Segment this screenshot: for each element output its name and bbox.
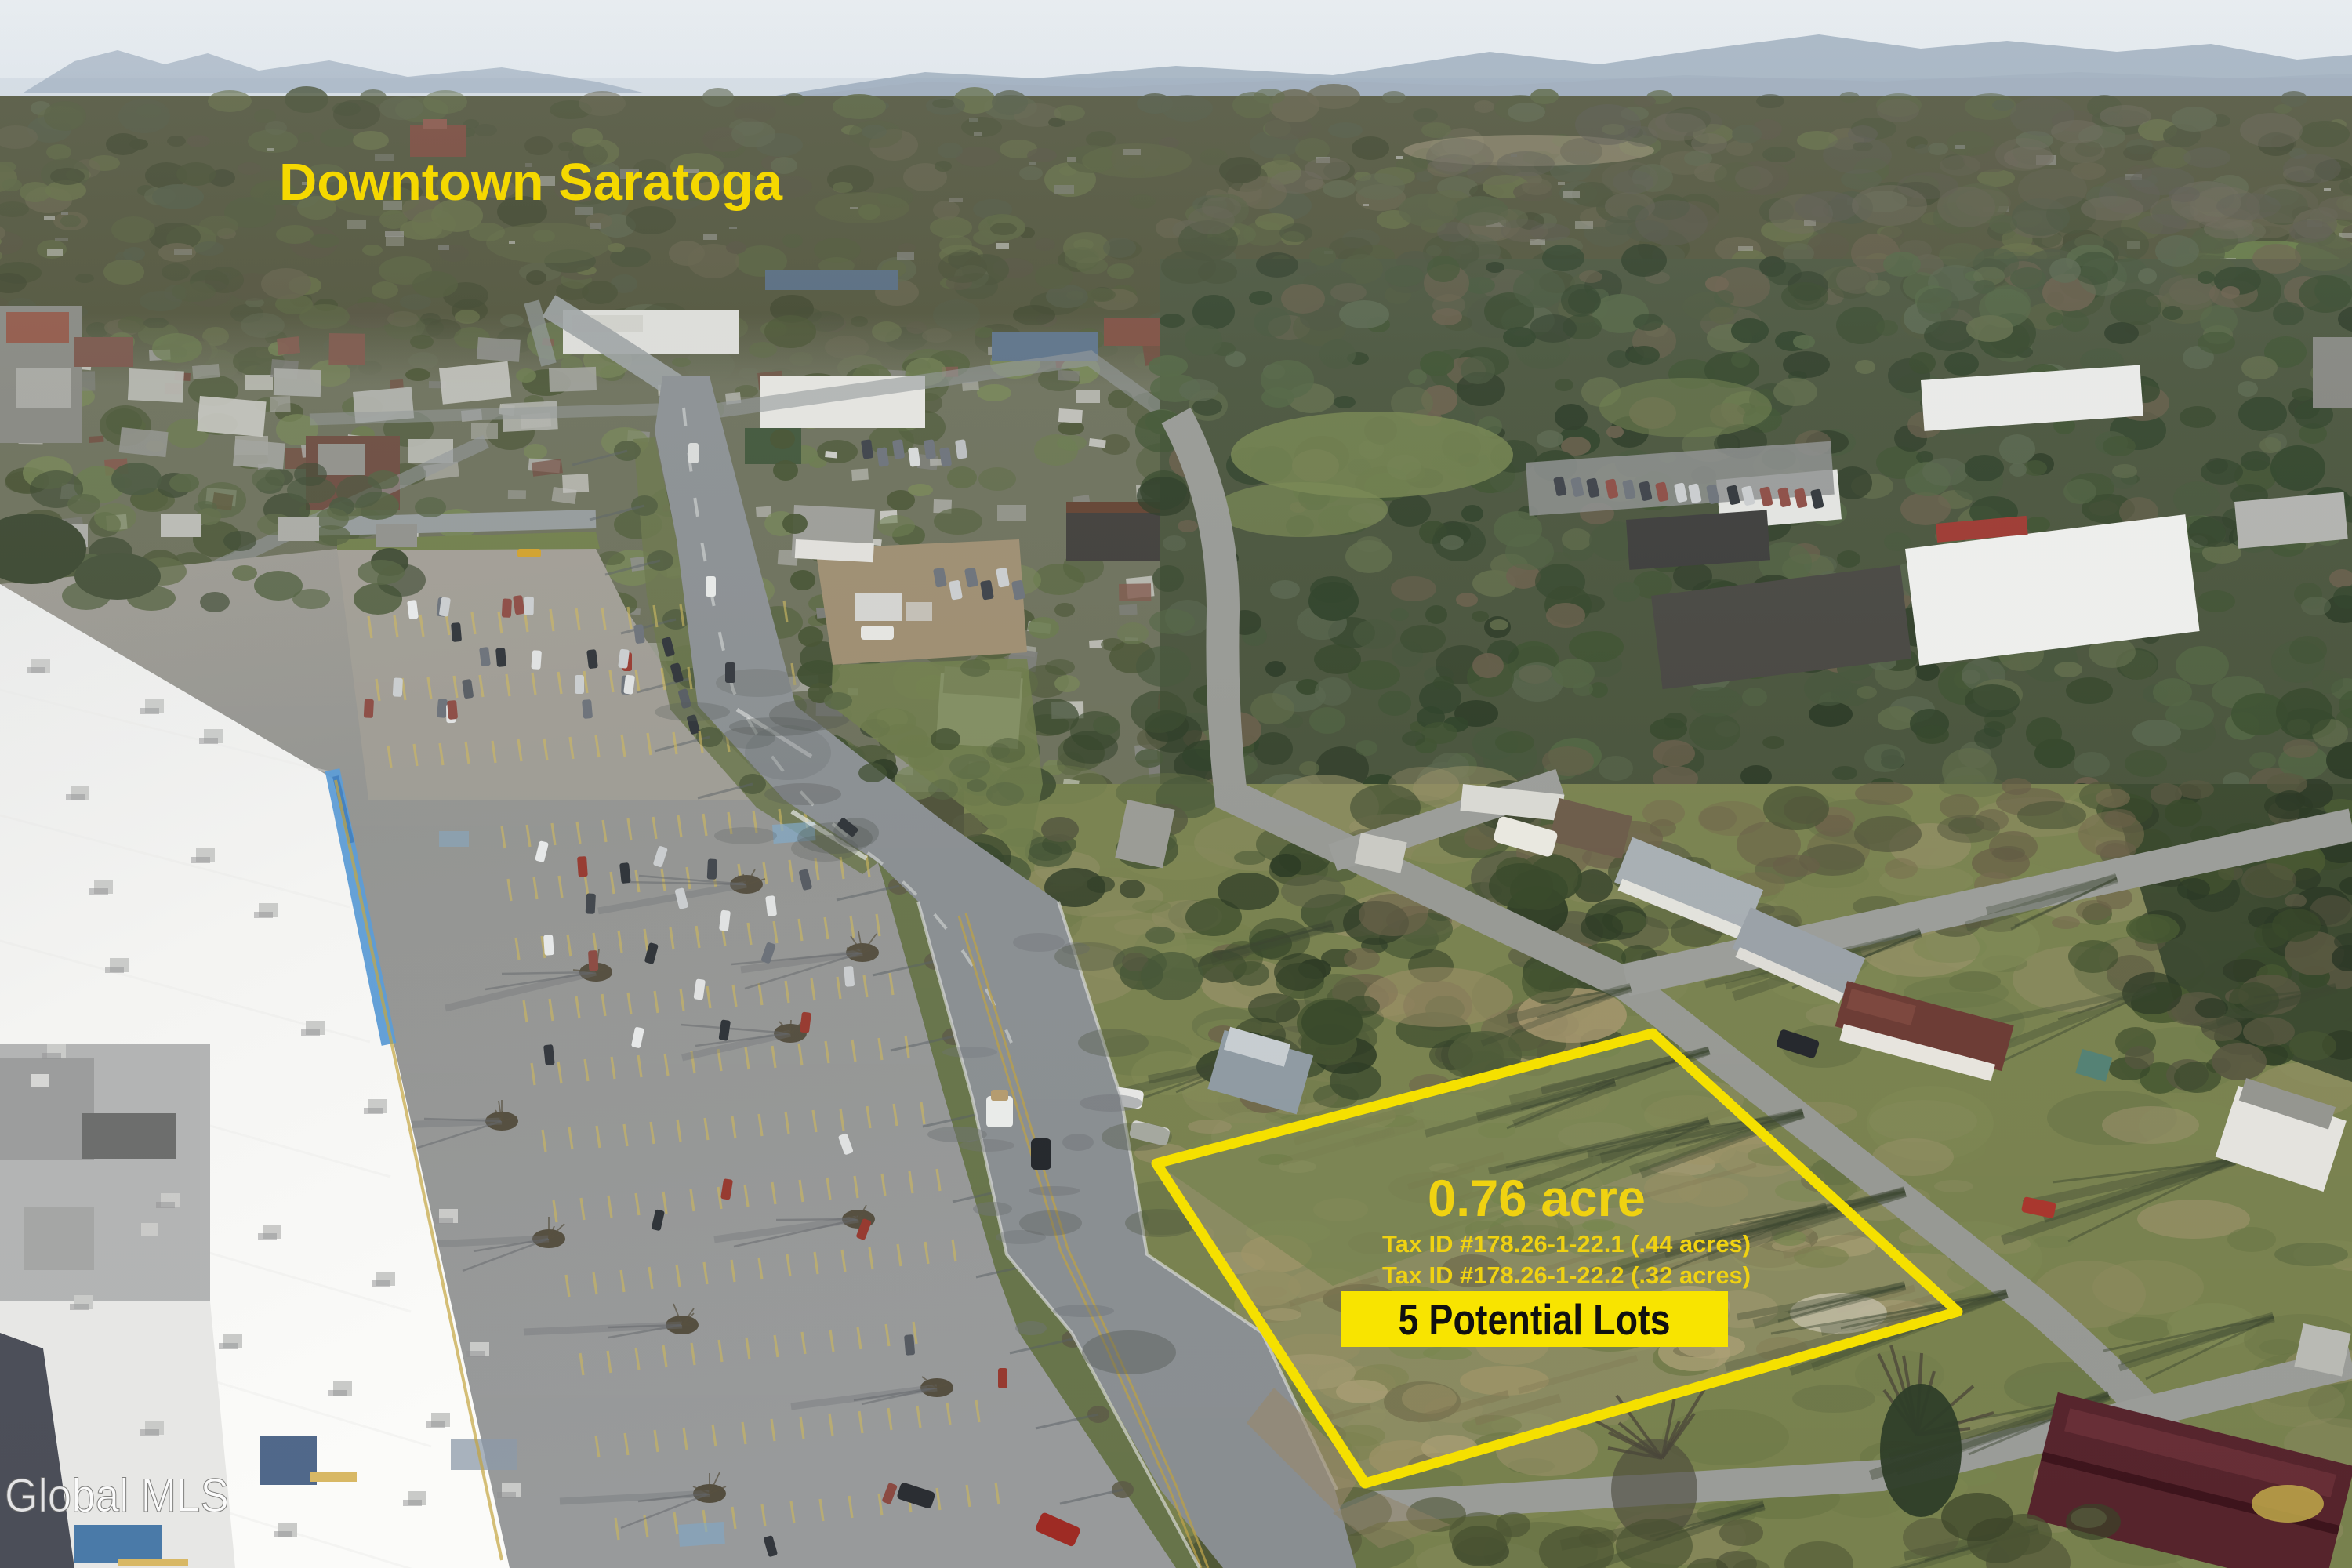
svg-text:Global MLS: Global MLS	[5, 1469, 229, 1522]
svg-text:Downtown Saratoga: Downtown Saratoga	[279, 153, 783, 212]
svg-text:Tax ID #178.26-1-22.1 (.44 acr: Tax ID #178.26-1-22.1 (.44 acres)	[1382, 1230, 1751, 1258]
svg-text:Tax ID #178.26-1-22.2 (.32 acr: Tax ID #178.26-1-22.2 (.32 acres)	[1382, 1261, 1751, 1289]
svg-text:5 Potential Lots: 5 Potential Lots	[1399, 1295, 1671, 1344]
svg-text:0.76 acre: 0.76 acre	[1428, 1169, 1646, 1227]
